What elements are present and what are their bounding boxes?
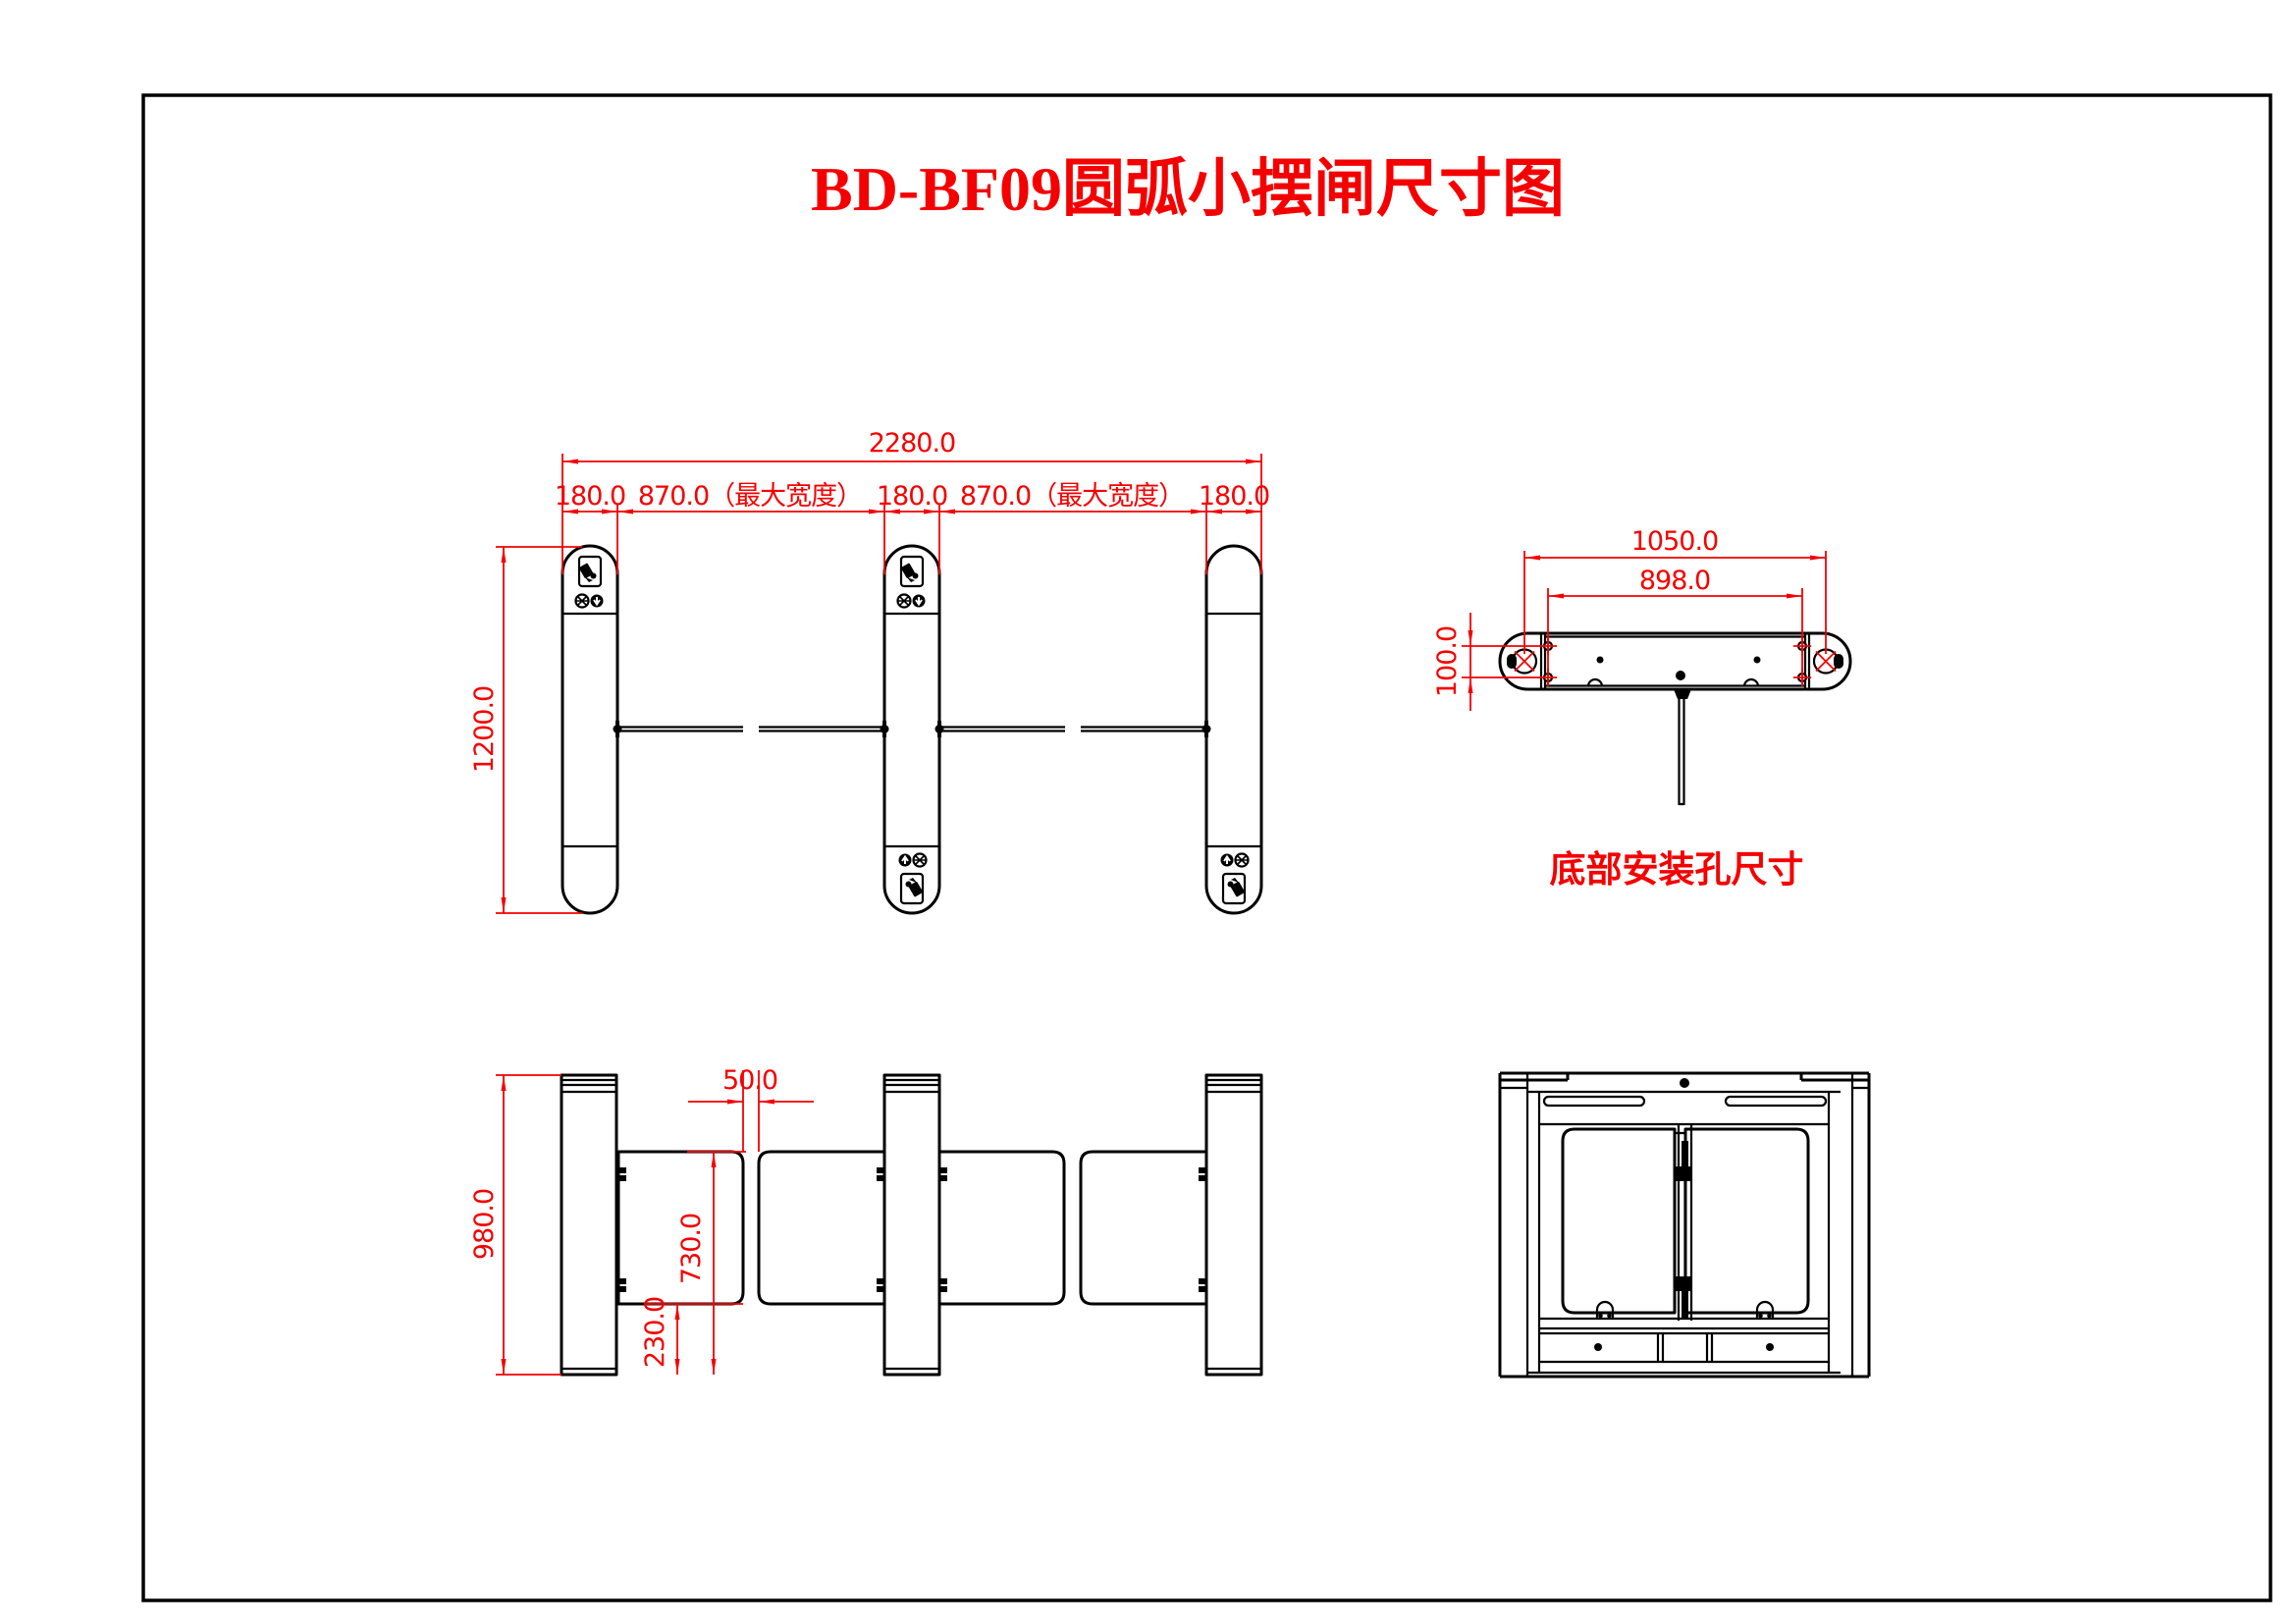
no-entry-indicator-icon: [914, 854, 927, 867]
swing-wing-4: [1081, 1152, 1206, 1304]
drawing-sheet: BD-BF09圆弧小摆闸尺寸图: [0, 0, 2296, 1623]
no-entry-indicator-icon: [576, 595, 589, 608]
drawing-title: BD-BF09圆弧小摆闸尺寸图: [811, 154, 1565, 224]
card-reader-icon: [901, 874, 923, 903]
pedestal-left-plan: [562, 546, 617, 913]
cable-slot-left: [1507, 654, 1517, 669]
pass-arrow-indicator-icon: [1221, 854, 1234, 867]
pass-arrow-indicator-icon: [899, 854, 912, 867]
card-reader-icon: [1223, 874, 1245, 903]
top-bolt-dot: [1680, 1078, 1689, 1088]
dim-text-passage-right: 870.0（最大宽度）: [960, 481, 1184, 512]
swing-wing-3: [939, 1152, 1064, 1304]
vent-slot-right: [1726, 1097, 1826, 1106]
dim-text-outer-hole-span: 1050.0: [1631, 526, 1718, 557]
no-entry-indicator-icon: [898, 595, 911, 608]
pass-arrow-indicator-icon: [913, 595, 926, 608]
post-right-front: [1206, 1075, 1261, 1375]
arm-side: [1680, 699, 1684, 805]
pedestal-middle-plan: [884, 546, 939, 913]
dim-text-wing-top-height: 730.0: [676, 1214, 707, 1284]
dim-text-wing-bottom-height: 230.0: [640, 1297, 670, 1368]
plan-view: 2280.0 180.0 870.0（最大宽度） 180.0 870.0（最大宽…: [469, 428, 1269, 913]
dim-text-cabinet-right: 180.0: [1199, 481, 1269, 512]
dim-text-cabinet-middle: 180.0: [877, 481, 947, 512]
dim-text-cabinet-depth: 1200.0: [469, 686, 500, 773]
post-middle-front: [884, 1075, 939, 1375]
plan-geometry: [562, 546, 1261, 913]
wing-panel-right-end: [1685, 1129, 1808, 1313]
base-compartment-dots: [1594, 1343, 1774, 1351]
no-entry-indicator-icon: [1236, 854, 1249, 867]
front-view: 980.0 50.0 730.0 230.0: [469, 1065, 1261, 1375]
wing-panel-left-end: [1563, 1129, 1675, 1313]
dim-text-passage-left: 870.0（最大宽度）: [638, 481, 862, 512]
end-view: [1500, 1073, 1869, 1377]
post-left-front: [561, 1075, 616, 1375]
dim-text-total-width: 2280.0: [869, 428, 955, 459]
swing-wing-2: [759, 1152, 884, 1304]
mounting-view-caption: 底部安装孔尺寸: [1550, 849, 1804, 891]
base-plate: [1500, 633, 1850, 689]
arm-hub-side: [1674, 689, 1691, 699]
cable-slot-right: [1834, 654, 1843, 669]
dim-text-inner-hole-span: 898.0: [1639, 566, 1710, 596]
dim-text-cabinet-height: 980.0: [469, 1189, 500, 1260]
dim-text-cabinet-left: 180.0: [555, 481, 625, 512]
card-reader-icon: [901, 557, 923, 586]
card-reader-icon: [579, 557, 601, 586]
vent-slot-left: [1544, 1097, 1644, 1106]
mounting-geometry: [1500, 633, 1850, 805]
mounting-view: 1050.0 898.0 100.0 底部安装孔尺寸: [1432, 526, 1850, 891]
dim-text-hole-row-spacing: 100.0: [1432, 626, 1463, 697]
pedestal-right-plan: [1206, 546, 1261, 913]
dim-text-wing-gap: 50.0: [722, 1065, 777, 1096]
pass-arrow-indicator-icon: [591, 595, 604, 608]
